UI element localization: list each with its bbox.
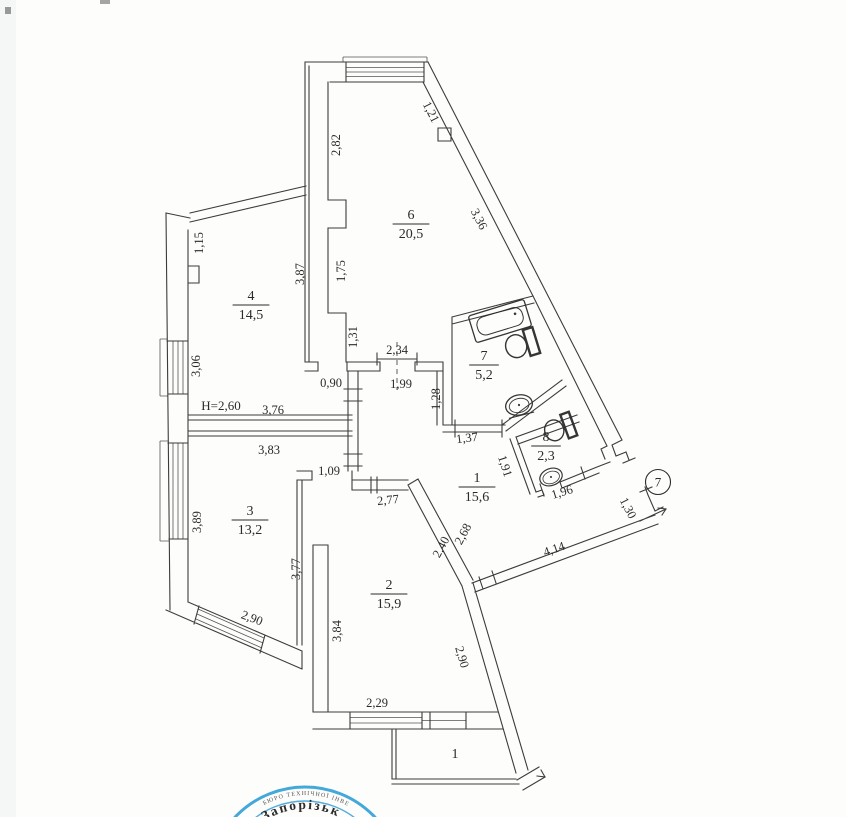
room-area: 14,5 xyxy=(239,308,264,323)
badge-number: 7 xyxy=(655,475,662,490)
dimension-label: 1,15 xyxy=(192,232,206,254)
room-area: 13,2 xyxy=(238,523,263,538)
floor-plan-canvas: 2,821,213,361,153,871,753,061,312,341,99… xyxy=(0,0,846,817)
room-area: 20,5 xyxy=(399,227,424,242)
room-number: 8 xyxy=(543,430,550,445)
balcony-label: 1 xyxy=(452,747,459,762)
room-area: 15,6 xyxy=(465,490,490,505)
dimension-label: 3,87 xyxy=(293,263,307,285)
scanned-floorplan-page: 2,821,213,361,153,871,753,061,312,341,99… xyxy=(0,0,846,817)
paper-background xyxy=(0,0,846,817)
dimension-label: 3,83 xyxy=(258,443,280,457)
room-area: 5,2 xyxy=(475,368,493,383)
dimension-label: 2,82 xyxy=(329,134,343,156)
dimension-label: 3,06 xyxy=(189,355,203,377)
dimension-label: 1,09 xyxy=(318,464,340,478)
room-number: 4 xyxy=(248,289,255,304)
room-area: 2,3 xyxy=(537,449,555,464)
room-number: 1 xyxy=(474,471,481,486)
room-number: 3 xyxy=(247,504,254,519)
dimension-label: 0,90 xyxy=(320,376,342,390)
dimension-label: 3,77 xyxy=(289,558,303,580)
dimension-label: 1,28 xyxy=(429,388,443,410)
scan-speck xyxy=(5,7,11,14)
scan-edge-shadow xyxy=(0,0,16,817)
dimension-label: 2,34 xyxy=(386,343,409,357)
dimension-label: 3,76 xyxy=(262,403,284,417)
room-area: 15,9 xyxy=(377,597,402,612)
ceiling-height-note: Н=2,60 xyxy=(201,398,240,413)
dimension-label: 1,31 xyxy=(346,326,360,348)
dimension-label: 2,77 xyxy=(376,492,399,508)
room-number: 7 xyxy=(481,349,488,364)
room-number: 6 xyxy=(408,208,415,223)
dimension-label: 1,99 xyxy=(390,377,412,391)
dimension-label: 3,89 xyxy=(190,511,204,533)
dimension-label: 1,75 xyxy=(334,260,348,282)
dimension-label: 2,29 xyxy=(366,696,388,710)
dimension-label: 3,84 xyxy=(330,619,344,642)
dimension-label: 1,37 xyxy=(455,430,478,447)
room-number: 2 xyxy=(386,578,393,593)
scan-speck xyxy=(100,0,110,4)
